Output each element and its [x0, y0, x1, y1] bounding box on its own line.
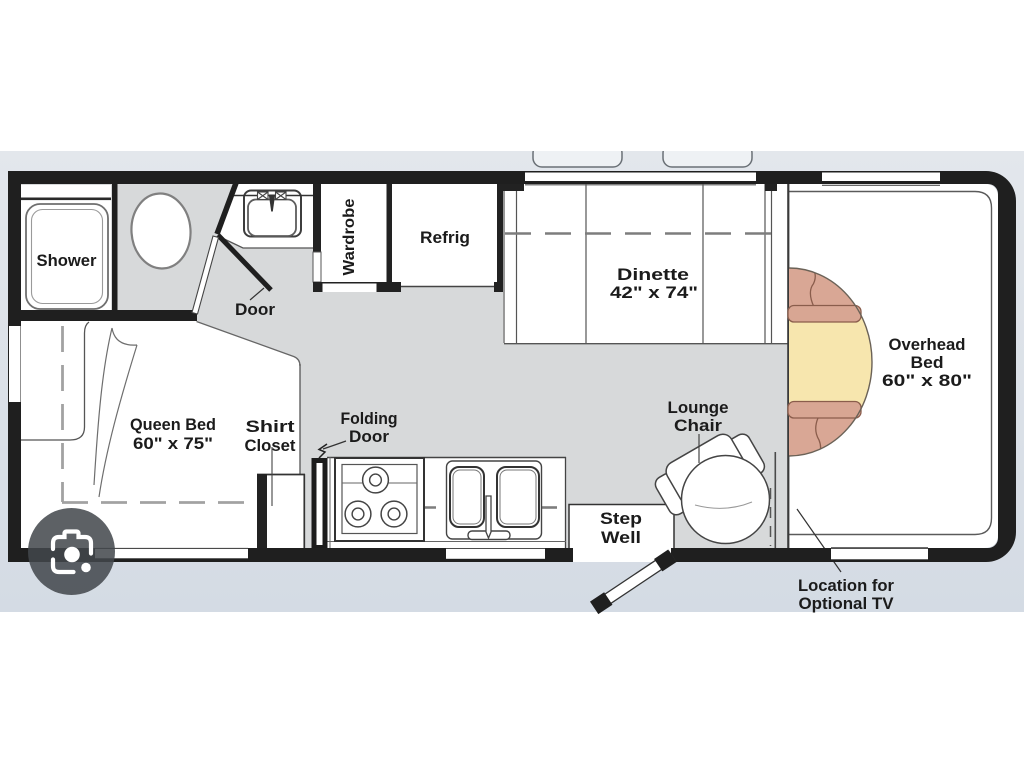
svg-text:Well: Well: [601, 528, 641, 547]
svg-text:Lounge: Lounge: [668, 398, 729, 417]
svg-text:Step: Step: [600, 509, 642, 528]
svg-text:Shirt: Shirt: [246, 417, 295, 436]
svg-text:Bed: Bed: [911, 353, 944, 372]
svg-text:42" x 74": 42" x 74": [610, 283, 698, 302]
svg-text:60" x 80": 60" x 80": [882, 371, 972, 390]
svg-text:Overhead: Overhead: [889, 335, 966, 354]
svg-text:60" x 75": 60" x 75": [133, 434, 213, 453]
svg-text:Closet: Closet: [245, 436, 296, 455]
svg-text:Dinette: Dinette: [617, 265, 689, 284]
svg-text:Door: Door: [235, 300, 275, 319]
svg-text:Queen Bed: Queen Bed: [130, 415, 216, 434]
svg-text:Folding: Folding: [341, 409, 398, 428]
svg-text:Refrig: Refrig: [420, 228, 470, 247]
svg-text:Wardrobe: Wardrobe: [341, 198, 358, 275]
svg-text:Chair: Chair: [674, 416, 722, 435]
svg-text:Door: Door: [349, 427, 389, 446]
svg-text:Shower: Shower: [37, 251, 97, 270]
svg-text:Optional TV: Optional TV: [799, 594, 895, 613]
svg-text:Location for: Location for: [798, 576, 894, 595]
